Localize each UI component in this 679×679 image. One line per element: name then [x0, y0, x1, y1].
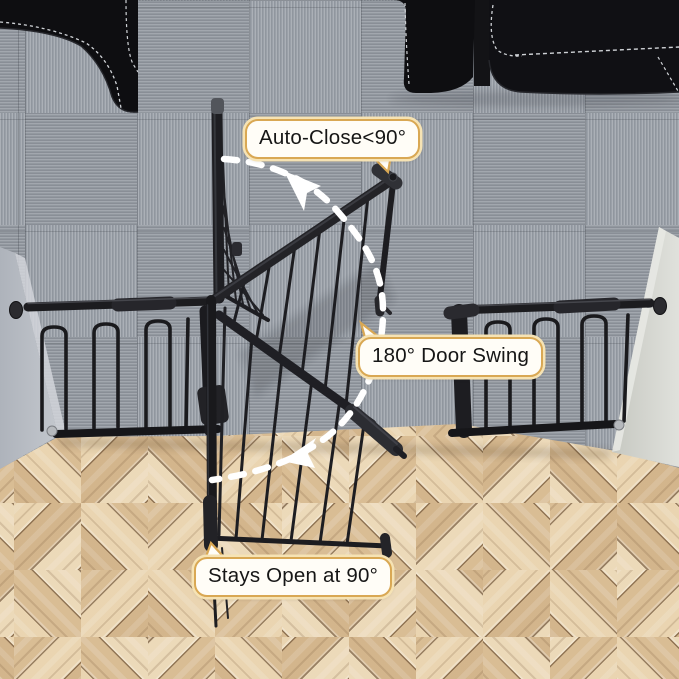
door-bar [347, 417, 365, 544]
loop-bar [582, 316, 606, 425]
door-bottom-rail [209, 538, 388, 546]
sofa-right [394, 0, 679, 94]
stile-foot [210, 502, 211, 545]
hinge-boss [232, 242, 242, 256]
floor-mount-bolt [47, 426, 57, 436]
door-bar [320, 399, 340, 543]
bottom-rail [56, 429, 218, 434]
door-bar [236, 338, 252, 539]
annotation-stays-open: Stays Open at 90° [194, 557, 392, 597]
loop-bar [94, 324, 118, 428]
loop-bar [146, 321, 170, 427]
doorway-wall-right [612, 227, 679, 467]
tension-rod [456, 303, 650, 310]
left-gate-section [10, 298, 230, 437]
annotation-auto-close: Auto-Close<90° [245, 119, 420, 159]
stile-cap [211, 98, 224, 114]
rod-adjuster-sleeve [560, 304, 614, 307]
floor-mount-bolt [614, 420, 624, 430]
wall-mount-knob [654, 298, 667, 315]
door-handle [352, 411, 396, 449]
wall-mount-knob [10, 302, 23, 319]
annotation-stays-open-text: Stays Open at 90° [208, 564, 378, 587]
latch-housing [450, 310, 473, 313]
door-stile [217, 106, 219, 298]
annotation-door-swing-text: 180° Door Swing [372, 344, 529, 367]
product-scene: Auto-Close<90° 180° Door Swing Stays Ope… [0, 0, 679, 679]
bottom-rail [452, 424, 615, 433]
annotation-door-swing: 180° Door Swing [358, 337, 543, 377]
rod-adjuster-sleeve [118, 303, 170, 305]
handle-bolt [389, 173, 397, 181]
annotation-auto-close-text: Auto-Close<90° [259, 126, 406, 149]
sofa-cushion-gap [474, 0, 490, 86]
stile-highlight [208, 305, 209, 528]
latch-foot [385, 538, 387, 553]
gate-bar [186, 319, 188, 428]
sofa-left [0, 0, 138, 112]
